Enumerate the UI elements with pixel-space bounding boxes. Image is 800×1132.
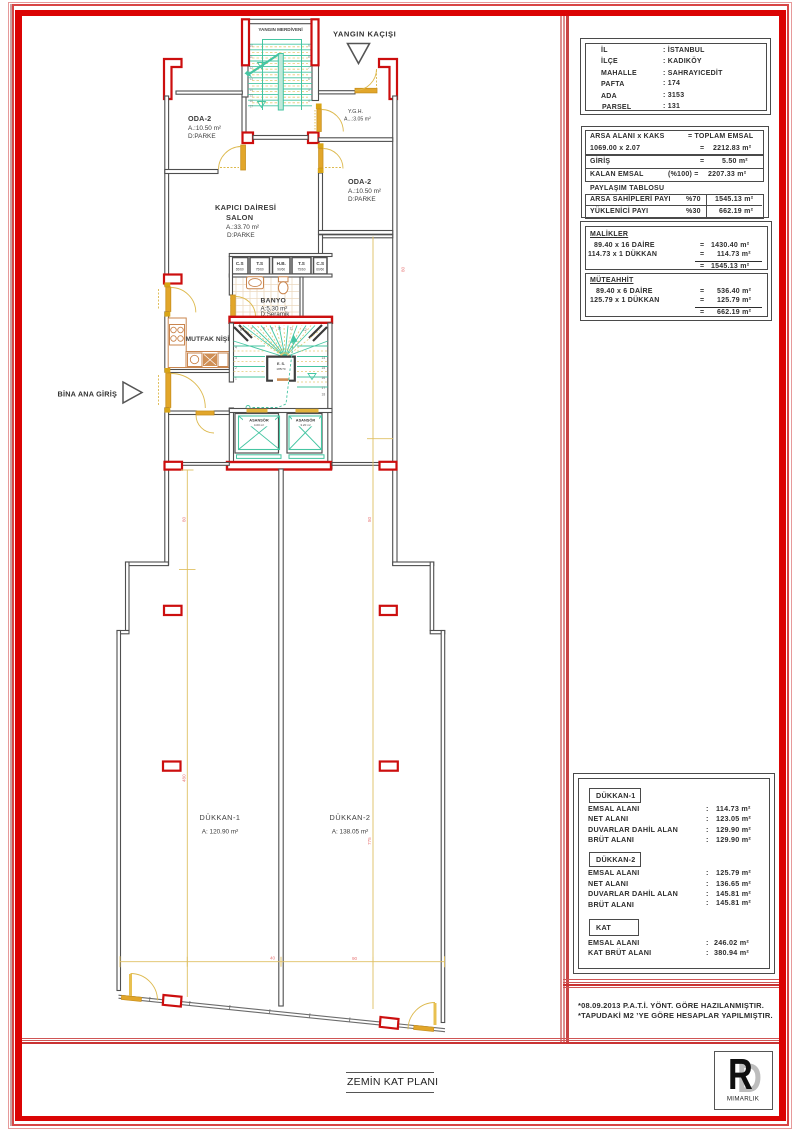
- svg-text:MIMARLIK: MIMARLIK: [727, 1096, 760, 1103]
- svg-text:R: R: [728, 1051, 753, 1099]
